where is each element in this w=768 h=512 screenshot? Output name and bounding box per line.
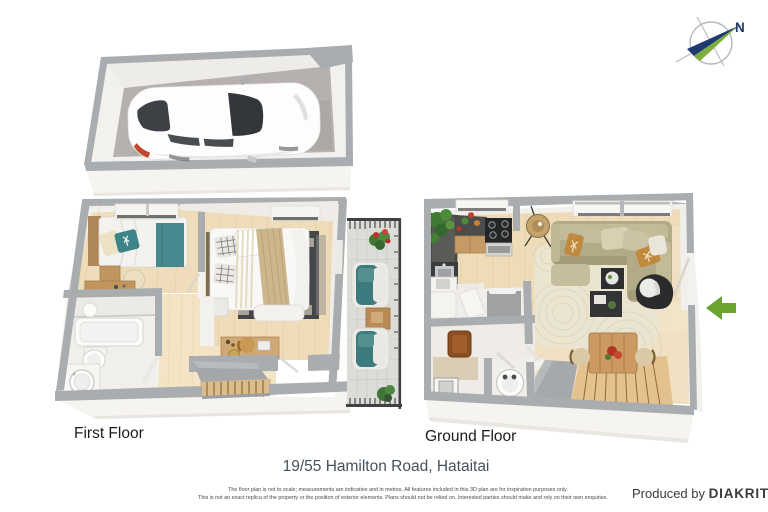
svg-text:Ground Floor: Ground Floor — [425, 428, 516, 445]
svg-text:Produced by DIAKRIT: Produced by DIAKRIT — [632, 486, 768, 501]
svg-text:19/55 Hamilton Road, Hataitai: 19/55 Hamilton Road, Hataitai — [283, 458, 490, 475]
svg-text:First Floor: First Floor — [74, 425, 144, 442]
svg-text:The floor plan is not to scale: The floor plan is not to scale; measurem… — [228, 487, 568, 493]
svg-text:This is not an exact replica o: This is not an exact replica of the prop… — [198, 495, 608, 501]
svg-text:N: N — [735, 20, 745, 35]
